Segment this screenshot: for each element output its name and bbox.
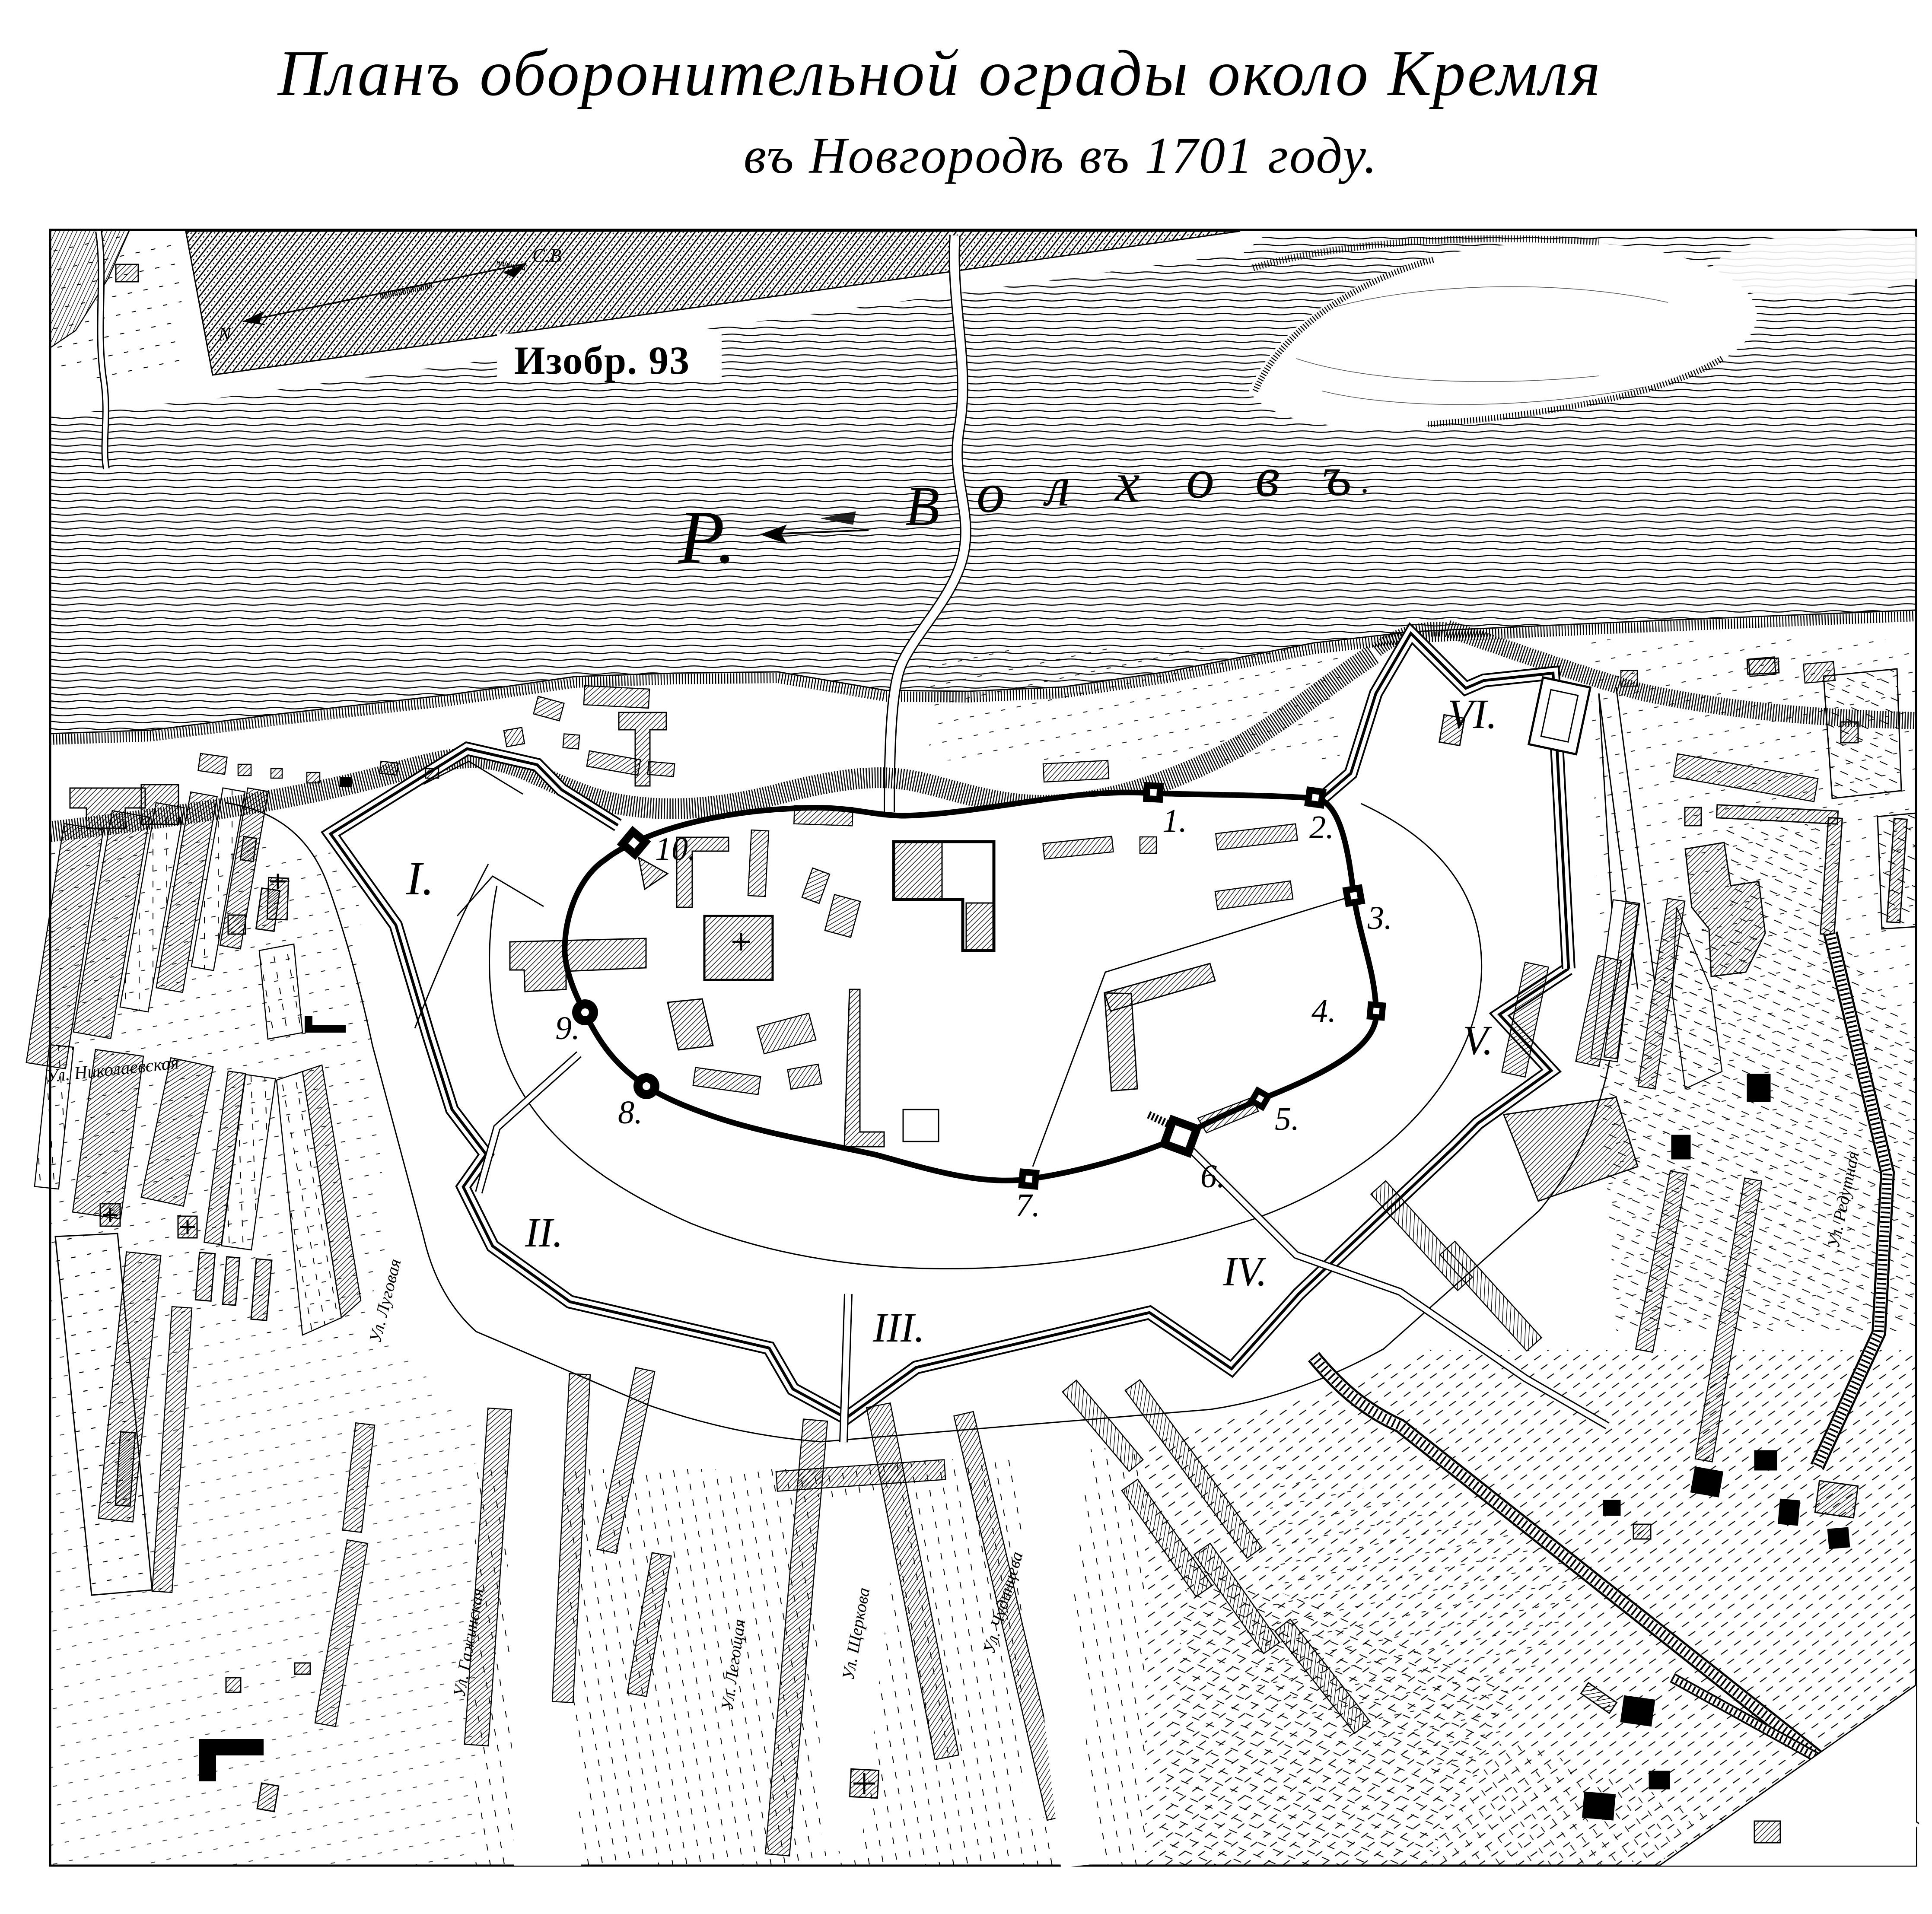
svg-text:Р.: Р. — [678, 495, 736, 579]
svg-text:Изобр. 93: Изобр. 93 — [514, 338, 690, 382]
svg-text:2.: 2. — [1309, 809, 1334, 846]
svg-text:1.: 1. — [1162, 803, 1187, 839]
svg-text:о: о — [1186, 448, 1214, 510]
svg-text:7.: 7. — [1015, 1187, 1040, 1224]
svg-text:IV.: IV. — [1222, 1248, 1267, 1294]
svg-text:N: N — [218, 324, 232, 345]
svg-text:х: х — [1114, 451, 1140, 514]
svg-text:4.: 4. — [1311, 993, 1336, 1029]
svg-text:I.: I. — [406, 852, 434, 905]
svg-text:въ Новгородѣ въ 1701 году.: въ Новгородѣ въ 1701 году. — [744, 127, 1378, 184]
svg-text:о: о — [977, 462, 1005, 525]
svg-text:III.: III. — [872, 1304, 925, 1351]
svg-text:В: В — [905, 475, 939, 537]
svg-text:V.: V. — [1463, 1017, 1493, 1063]
svg-text:6.: 6. — [1200, 1158, 1225, 1195]
svg-text:3.: 3. — [1367, 900, 1392, 936]
svg-text:Планъ оборонительной ограды ок: Планъ оборонительной ограды около Кремля — [277, 37, 1602, 109]
svg-text:.: . — [1361, 462, 1370, 500]
svg-text:С.В: С.В — [532, 245, 561, 266]
svg-text:10.: 10. — [655, 831, 696, 867]
svg-text:9.: 9. — [555, 1010, 580, 1046]
svg-text:8.: 8. — [618, 1094, 643, 1131]
svg-text:5.: 5. — [1275, 1101, 1299, 1137]
svg-text:ъ: ъ — [1322, 445, 1351, 508]
svg-text:в: в — [1255, 446, 1280, 509]
svg-text:II.: II. — [525, 1209, 563, 1256]
svg-text:л: л — [1043, 456, 1070, 518]
